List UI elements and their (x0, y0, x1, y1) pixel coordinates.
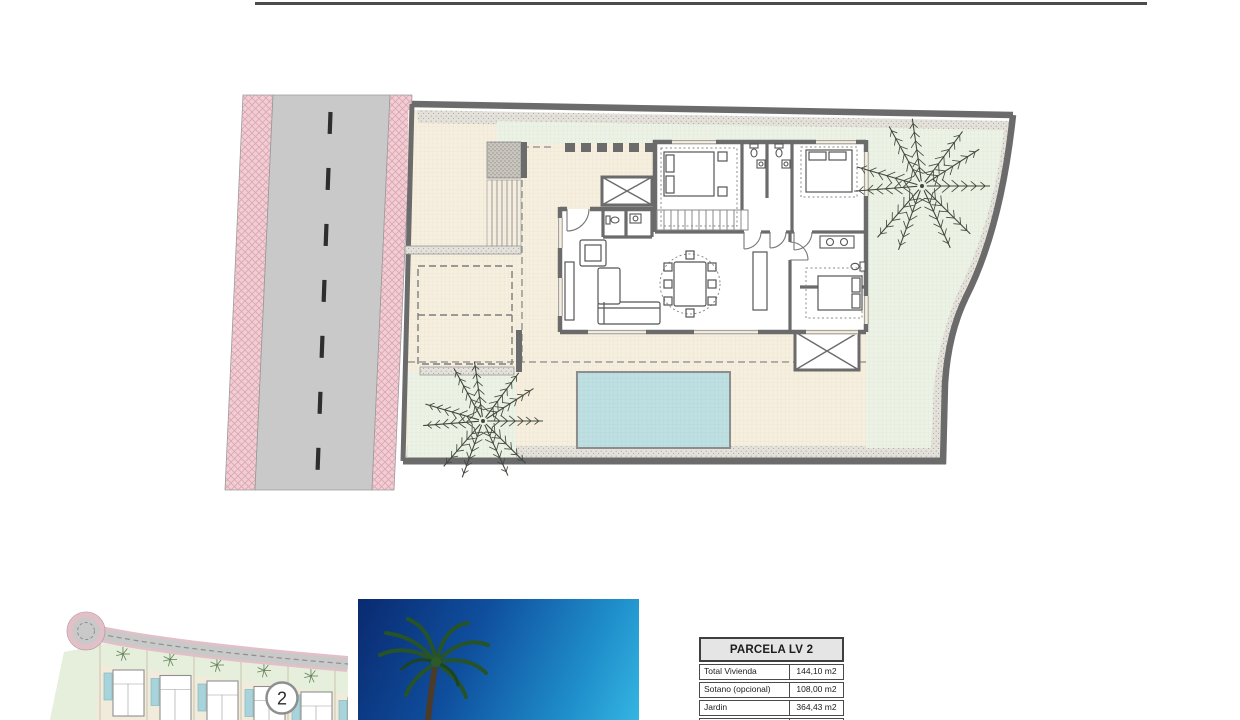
row-value: 144,10 m2 (790, 665, 843, 679)
photo-palm-tree (358, 599, 639, 720)
parcel-table: PARCELA LV 2 Total Vivienda 144,10 m2 So… (699, 637, 844, 720)
page: 2 PARCELA LV 2 (0, 0, 1240, 720)
overview-garden-strip (50, 645, 100, 720)
site-overview-map: 2 (50, 612, 382, 720)
row-label: Total Vivienda (700, 665, 790, 679)
table-row: Sotano (opcional) 108,00 m2 (699, 682, 844, 698)
row-value: 108,00 m2 (790, 683, 843, 697)
table-row: Jardin 364,43 m2 (699, 700, 844, 716)
parcel-table-title: PARCELA LV 2 (699, 637, 844, 662)
low-wall-2 (420, 367, 514, 375)
plot-2-number: 2 (277, 689, 287, 709)
swimming-pool (577, 372, 730, 448)
canopy-skylight-1 (602, 177, 652, 205)
wall-segment (516, 330, 522, 372)
low-wall (405, 246, 521, 254)
staircase (657, 210, 748, 230)
row-label: Jardin (700, 701, 790, 715)
road (225, 95, 412, 490)
row-value: 364,43 m2 (790, 701, 843, 715)
canopy-skylight-2 (795, 332, 859, 370)
table-row: Total Vivienda 144,10 m2 (699, 664, 844, 680)
plot-2-marker: 2 (267, 683, 298, 714)
row-label: Sotano (opcional) (700, 683, 790, 697)
palm-sky-photo (358, 599, 639, 720)
